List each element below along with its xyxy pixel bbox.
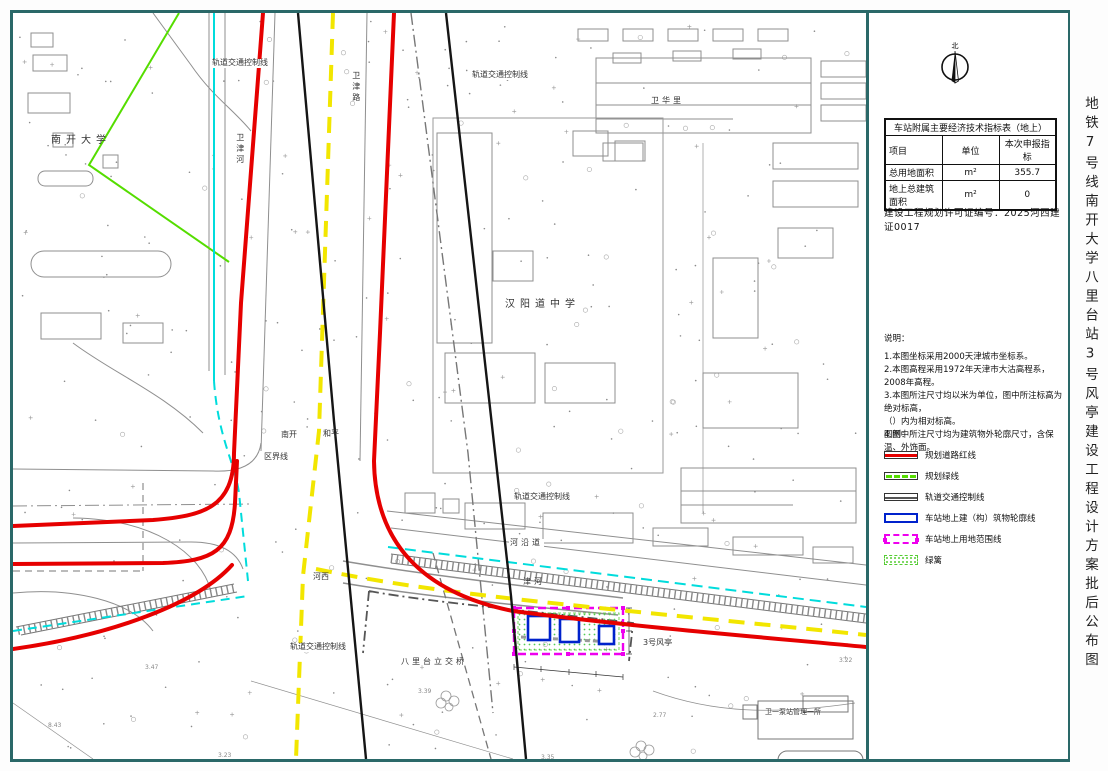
legend-item: 车站地上用地范围线 (884, 534, 1066, 544)
spec-table-title: 车站附属主要经济技术指标表（地上） (885, 119, 1056, 136)
site-plan-map: 南开大学卫津河轨道交通控制线卫津路轨道交通控制线卫华里汉阳道中学南开和平区界线轨… (13, 13, 866, 759)
spec-col-unit: 单位 (942, 136, 999, 165)
note-line: 2.本图高程采用1972年天津市大沽高程系，2008年高程。 (884, 364, 1064, 390)
map-label: 河沿道 (509, 539, 544, 548)
spot-elevation: 3.22 (839, 658, 852, 665)
map-label: 卫一泵站管理一所 (765, 709, 821, 717)
map-label: 轨道交通控制线 (211, 59, 269, 68)
north-compass: 北 (935, 41, 975, 97)
map-label: 河西 (313, 573, 329, 582)
legend-item: 规划绿线 (884, 471, 1066, 481)
map-drawing (13, 13, 866, 759)
legend-block: 图例： 规划道路红线 规划绿线 轨道交通控制线 车站地上建（构）筑物轮廓线 车站… (884, 428, 1066, 576)
map-label: 津河 (523, 578, 545, 587)
plan-sheet: { "title_vertical": "地铁7号线南开大学八里台站3号风亭建设… (0, 0, 1108, 771)
legend-item: 绿篱 (884, 555, 1066, 565)
legend-swatch (884, 493, 918, 501)
info-panel: 北 车站附属主要经济技术指标表（地上） 项目 单位 本次申报指标 总用地面积 m… (869, 13, 1068, 759)
spot-elevation: 3.47 (145, 665, 158, 672)
map-label: 南开 (281, 431, 297, 440)
spec-table-row: 总用地面积 m² 355.7 (885, 165, 1056, 181)
spot-elevation: 8.43 (48, 723, 61, 730)
map-label: 卫华里 (651, 97, 684, 106)
legend-swatch (884, 555, 918, 565)
legend-item: 车站地上建（构）筑物轮廓线 (884, 513, 1066, 523)
legend-label: 车站地上建（构）筑物轮廓线 (925, 512, 1036, 524)
map-label: 南开大学 (51, 135, 111, 146)
note-line: 1.本图坐标采用2000天津城市坐标系。 (884, 351, 1064, 364)
legend-label: 绿篱 (925, 554, 942, 566)
legend-label: 规划绿线 (925, 470, 959, 482)
legend-swatch (884, 472, 918, 480)
legend-title: 图例： (884, 428, 1066, 440)
map-label: 3号风亭 (643, 639, 672, 648)
note-line: 3.本图所注尺寸均以米为单位，图中所注标高为绝对标高， (884, 390, 1064, 416)
map-label: 轨道交通控制线 (289, 643, 347, 652)
spec-cell-value: 355.7 (999, 165, 1056, 181)
map-label: 汉阳道中学 (505, 299, 580, 310)
title-strip: 地铁7号线南开大学八里台站3号风亭建设工程设计方案批后公布图 (1074, 0, 1108, 771)
notes-title: 说明： (884, 333, 1064, 346)
river-blue-lines (13, 13, 866, 631)
spot-elevation: 2.77 (653, 713, 666, 720)
drawing-title: 地铁7号线南开大学八里台站3号风亭建设工程设计方案批后公布图 (1080, 96, 1100, 671)
spot-elevation: 3.23 (218, 753, 231, 759)
permit-number: 建设工程规划许可证编号：2025河西建证0017 (884, 205, 1068, 233)
spot-elevation: 3.35 (541, 755, 554, 759)
spot-elevation: 3.39 (418, 689, 431, 696)
map-label: 八里台立交桥 (401, 658, 467, 667)
spec-cell-item: 总用地面积 (885, 165, 942, 181)
map-label: 区界线 (263, 453, 289, 462)
legend-item: 轨道交通控制线 (884, 492, 1066, 502)
legend-swatch (884, 451, 918, 459)
legend-swatch (884, 534, 918, 544)
tree-dot-scatter (19, 21, 856, 754)
legend-swatch (884, 513, 918, 523)
vent-shaft-3 (599, 626, 614, 644)
building-road-network (13, 13, 866, 759)
vent-shaft-2 (560, 619, 579, 642)
legend-item: 规划道路红线 (884, 450, 1066, 460)
spec-cell-unit: m² (942, 165, 999, 181)
vent-shaft-1 (528, 616, 550, 640)
spec-col-item: 项目 (885, 136, 942, 165)
map-label: 卫津河 (235, 133, 244, 166)
spec-table: 车站附属主要经济技术指标表（地上） 项目 单位 本次申报指标 总用地面积 m² … (884, 118, 1057, 211)
north-label: 北 (935, 41, 975, 51)
map-label: 和平 (323, 430, 339, 439)
legend-label: 车站地上用地范围线 (925, 533, 1002, 545)
legend-label: 轨道交通控制线 (925, 491, 985, 503)
map-label: 轨道交通控制线 (513, 493, 571, 502)
legend-label: 规划道路红线 (925, 449, 976, 461)
map-label: 卫津路 (351, 71, 360, 104)
map-label: 轨道交通控制线 (471, 71, 529, 80)
spec-col-value: 本次申报指标 (999, 136, 1056, 165)
